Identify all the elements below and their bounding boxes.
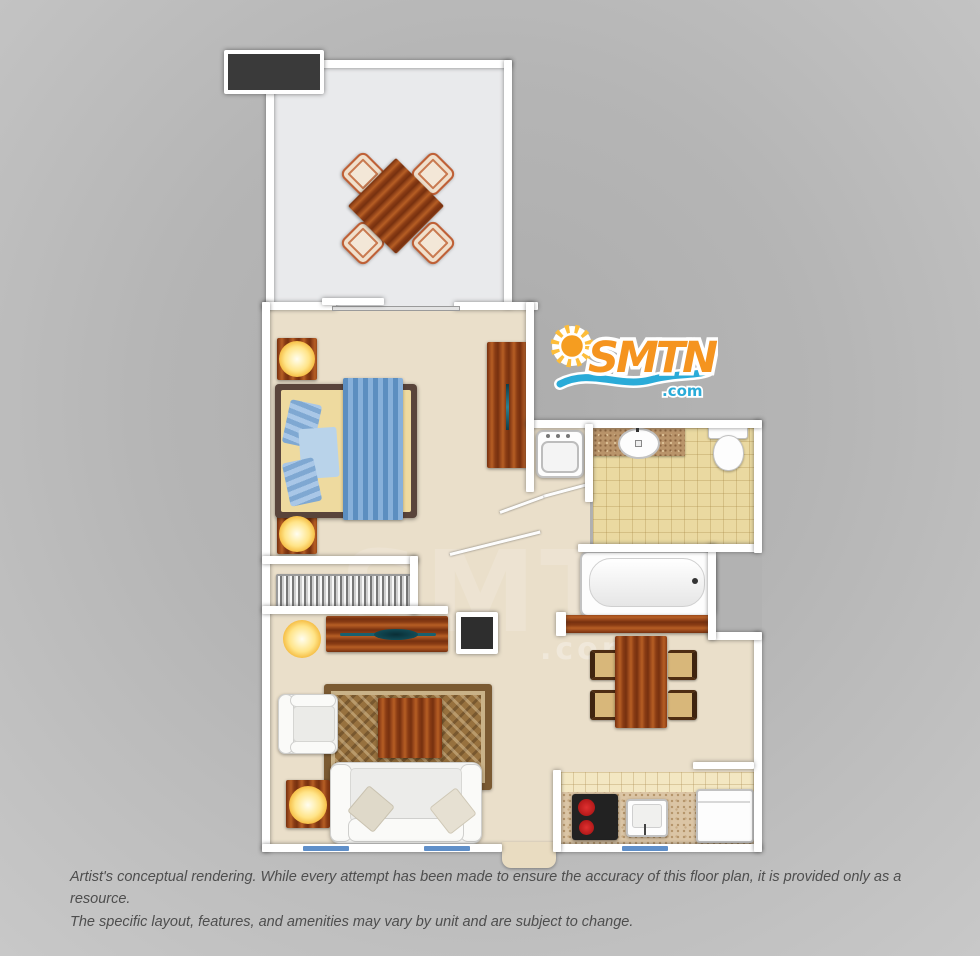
armchair-seat [293, 706, 335, 742]
wall-right-lower [754, 632, 762, 852]
table-lamp-top [279, 341, 315, 377]
kitchen-faucet [644, 824, 646, 835]
washer-knob [546, 434, 550, 438]
ac-unit [224, 50, 324, 94]
dresser-handle [506, 384, 509, 430]
window-living-left [303, 846, 349, 851]
wall-bedroom-right [526, 302, 534, 492]
washer-knob [556, 434, 560, 438]
table-lamp-bottom [279, 516, 315, 552]
entry-threshold [502, 842, 556, 868]
smtn-logo: SMTN .com [546, 310, 718, 402]
toilet-bowl [713, 435, 744, 471]
wall-bedroom-bottom [262, 556, 418, 564]
dining-table [615, 636, 667, 728]
wall-bath-right [754, 420, 762, 553]
dining-chair-3 [668, 650, 697, 680]
washer-knob [566, 434, 570, 438]
washer-door [541, 441, 579, 473]
floor-plan-canvas: SMTN .com [0, 0, 980, 956]
sliding-door-track [332, 306, 460, 311]
bathtub-drain [692, 578, 698, 584]
coffee-table [378, 698, 442, 758]
wall-closet-bottom [262, 606, 448, 614]
entry-closet-box [456, 612, 498, 654]
floor-lamp [283, 620, 321, 658]
bathtub-basin [589, 558, 705, 607]
wall-dining-step [708, 632, 762, 640]
wall-tub-right [708, 544, 716, 640]
wall-bath-left [585, 424, 593, 502]
kitchen-sink-basin [632, 804, 662, 828]
logo-tld: .com [662, 382, 703, 400]
wall-kitchen-left [553, 770, 561, 852]
logo-text: SMTN [588, 333, 718, 383]
wall-bath-top [526, 420, 762, 428]
sliding-door-panel [322, 298, 384, 305]
dining-chair-4 [668, 690, 697, 720]
stove-burner-top [578, 799, 595, 816]
stove [572, 794, 618, 840]
exterior-notch [714, 553, 762, 633]
wall-bar-stub [556, 612, 566, 636]
window-kitchen [622, 846, 668, 851]
breakfast-bar [565, 615, 712, 633]
wall-fridge-top [693, 762, 754, 769]
armchair-arm-bottom [290, 741, 336, 754]
accordion-closet-door [276, 574, 416, 610]
disclaimer-line-1: Artist's conceptual rendering. While eve… [70, 866, 936, 911]
wall-balcony-left [266, 80, 274, 308]
tv [374, 629, 418, 640]
refrigerator-divider [698, 801, 750, 803]
sun-icon [552, 326, 592, 366]
disclaimer-text: Artist's conceptual rendering. While eve… [70, 866, 936, 933]
end-table-lamp [289, 786, 327, 824]
wall-balcony-right [504, 60, 512, 308]
stove-burner-bottom [579, 820, 594, 835]
wall-left [262, 302, 270, 852]
sink-drain [635, 440, 642, 447]
wall-tub-top [578, 544, 758, 552]
window-living-right [424, 846, 470, 851]
bed-runner [343, 378, 403, 520]
disclaimer-line-2: The specific layout, features, and ameni… [70, 911, 936, 933]
wall-balcony-top [314, 60, 512, 68]
refrigerator [696, 789, 754, 843]
